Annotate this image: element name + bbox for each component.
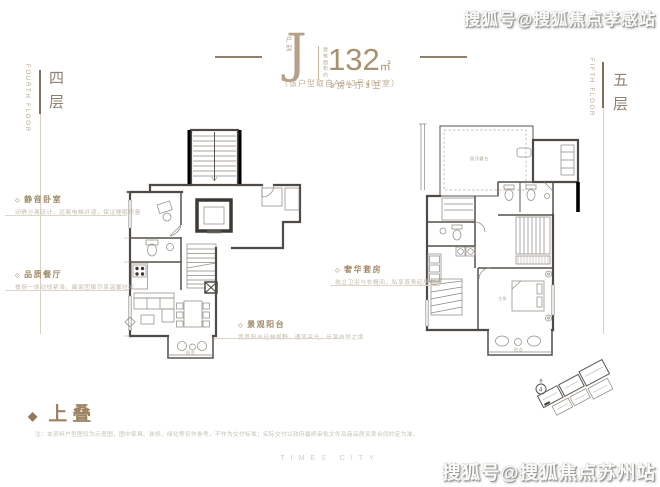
laundry [456,247,475,256]
header-rule-right [420,56,467,58]
area-label: 建筑面积约 [321,47,328,79]
header-rule-left [215,56,262,58]
callout-dining: ◇品质餐厅 餐厨一体动线紧凑，阖家团聚尽享温馨时光 [15,269,135,291]
unit-marker-number: 4 [539,388,543,394]
callout-quiet-bedroom: ◇静音卧室 动静分离设计，远离电梯井道，保证睡眠质量 [15,194,141,216]
site-plan: 4 [515,358,635,426]
area-unit: ㎡ [380,61,391,73]
fifth-floor-rule-dark [602,62,604,108]
fourth-floor-rule-dark [39,70,41,114]
stairs-up [516,217,550,264]
master-bathroom [498,182,553,215]
diamond-icon: ◇ [15,273,21,279]
disclaimer-text: 注：本资料户型图仅为示意图，图中家具、装修、绿化等仅作参考，不作为交付标准；实际… [35,429,627,438]
fourth-floor-rule-thin [40,114,41,334]
fifth-floor-plan: 屋顶露台 [415,106,593,362]
callout-line [5,290,127,291]
callout-line [214,338,340,339]
watermark-bottom-right: 搜狐号@搜狐焦点苏州站 [442,459,656,485]
roof-terrace: 屋顶露台 [440,126,533,196]
header-divider [318,46,319,79]
master-bedroom: 主卧 [478,268,553,330]
diamond-icon: ◇ [238,323,244,329]
callout-desc: 宽景阳台延伸视野，通风采光，乐享自然之境 [238,332,364,341]
callout-title: 景观阳台 [247,320,285,329]
source-note: （该户型取自A3#3号402室） [250,78,430,89]
floorplan-page: 搜狐号@搜狐焦点孝感站 搜狐号@搜狐焦点苏州站 户型 J 建筑面积约 132㎡ … [0,0,660,487]
section-title: ◆上叠 [28,399,96,426]
upper-right-room [533,140,580,212]
master-bedroom-label: 主卧 [498,295,507,302]
callout-line [330,285,440,286]
brand-text: TIMES CITY [0,455,660,462]
diamond-icon: ◇ [335,268,341,274]
bathroom [130,238,181,256]
fourth-balcony-label: 阳台 [186,349,195,356]
hall-bathroom [427,196,485,268]
stairwell [188,130,242,185]
unit-letter: J [286,28,307,80]
watermark-top-right: 搜狐号@搜狐焦点孝感站 [464,6,656,30]
fifth-floor-rule-thin [603,108,604,334]
diamond-icon: ◆ [28,409,42,423]
dining-area [177,301,210,327]
section-title-text: 上叠 [48,404,96,425]
area-number: 132 [328,42,380,77]
fifth-floor-zh: 五层 [609,72,630,120]
elevator-shaft [197,200,231,233]
fifth-balcony-label: 阳台 [514,346,523,353]
callout-title: 品质餐厅 [24,270,62,279]
callout-title: 奢华套房 [344,265,382,274]
callout-master-suite: ◇奢华套房 独立卫浴与衣帽间，私享尊贵起居体验 [335,264,442,286]
closet-room [442,198,475,220]
callout-line [5,215,127,216]
unit-marker: 4 [536,379,546,394]
diamond-icon: ◇ [15,198,21,204]
terrace-label: 屋顶露台 [470,155,489,162]
fourth-floor-en: FOURTH FLOOR [24,64,30,133]
fourth-floor-zh: 四层 [45,70,66,118]
flue-wall [419,124,427,190]
fifth-balcony: 阳台 [488,330,552,355]
fourth-balcony: 阳台 [168,336,213,358]
interior-stairs [187,244,217,293]
callout-title: 静音卧室 [24,195,62,204]
site-buildings [537,360,617,422]
